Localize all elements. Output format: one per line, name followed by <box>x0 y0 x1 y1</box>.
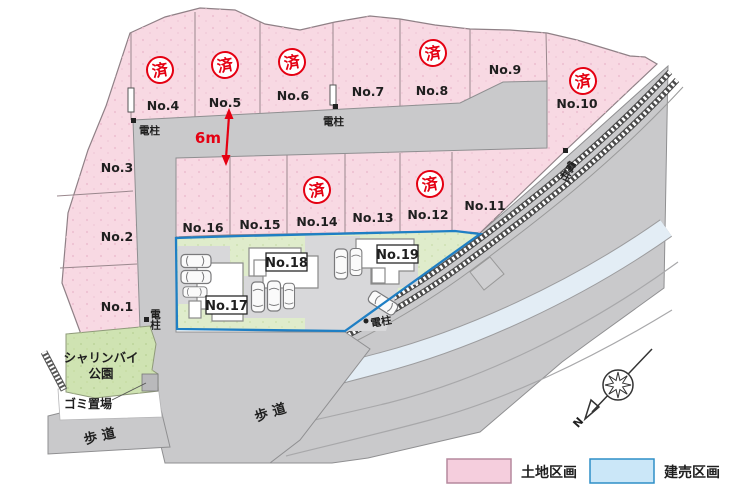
road-width-label: 6m <box>195 129 221 147</box>
plot-label-12: No.12 <box>407 207 448 222</box>
plot-label-4: No.4 <box>147 98 180 113</box>
plot-label-9: No.9 <box>489 62 522 77</box>
plot-label-14: No.14 <box>296 214 337 229</box>
compass: N <box>570 349 652 430</box>
legend-swatch-built <box>590 459 654 483</box>
pole-symbol <box>330 85 336 105</box>
legend-label-built: 建売区画 <box>664 464 720 481</box>
slope-hatch <box>44 352 64 390</box>
garbage-label: ゴミ置場 <box>64 396 112 411</box>
legend: 土地区画 建売区画 <box>447 459 720 483</box>
plot-label-6: No.6 <box>277 88 310 103</box>
plot-label-19: No.19 <box>376 248 419 263</box>
plot-label-17: No.17 <box>205 299 248 314</box>
plot-label-13: No.13 <box>352 210 393 225</box>
garbage-spot <box>142 374 158 391</box>
pole-dot <box>364 319 369 324</box>
house-17-porch <box>189 301 201 318</box>
plot-label-8: No.8 <box>416 83 449 98</box>
plot-label-16: No.16 <box>182 220 223 235</box>
plot-label-1: No.1 <box>101 299 134 314</box>
map-canvas: No.1 No.2 No.3 No.4 No.5 No.6 No.7 No.8 … <box>0 0 735 500</box>
pole-label-4: 電柱 <box>149 309 161 331</box>
plot-label-15: No.15 <box>239 217 280 232</box>
subdivision-map: No.1 No.2 No.3 No.4 No.5 No.6 No.7 No.8 … <box>0 0 735 500</box>
plot-label-3: No.3 <box>101 160 134 175</box>
pole-symbol <box>128 88 134 112</box>
plot-label-5: No.5 <box>209 95 242 110</box>
plot-label-10: No.10 <box>556 96 597 111</box>
legend-label-land: 土地区画 <box>521 464 577 481</box>
house-19-porch <box>372 268 385 283</box>
north-arrow <box>585 400 599 419</box>
plot-label-7: No.7 <box>352 84 385 99</box>
plot-label-11: No.11 <box>464 198 505 213</box>
north-label: N <box>570 415 586 431</box>
plot-label-2: No.2 <box>101 229 134 244</box>
plot-label-18: No.18 <box>265 256 308 271</box>
legend-swatch-land <box>447 459 511 483</box>
pole-label-1: 電柱 <box>139 124 160 137</box>
pole-dot <box>563 148 568 153</box>
park-label-line2: 公園 <box>88 366 113 381</box>
pole-dot <box>131 118 136 123</box>
pole-label-2: 電柱 <box>323 115 344 128</box>
park-label-line1: シャリンバイ <box>63 350 138 365</box>
pole-dot <box>333 104 338 109</box>
